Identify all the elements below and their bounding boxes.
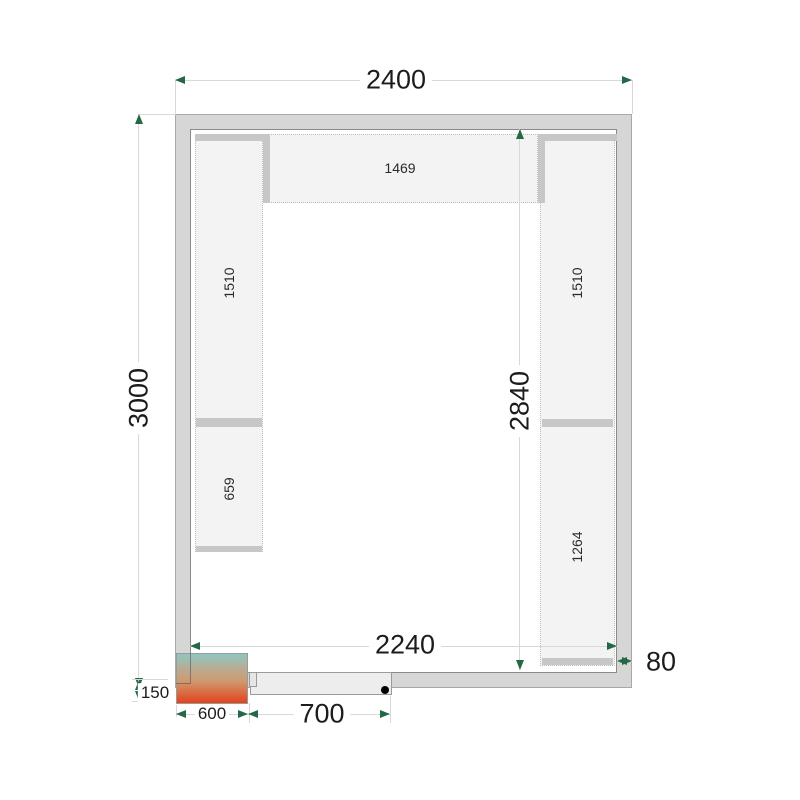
dim-3000-arrow-top xyxy=(135,114,143,124)
dim-700-arrow-right xyxy=(380,710,390,718)
dim-80-arrow-right xyxy=(622,657,632,665)
shelf-label-left-upper: 1510 xyxy=(222,267,236,298)
dim-3000-ext-top xyxy=(138,114,176,115)
dim-700-ext-right xyxy=(390,696,391,723)
shelf-edge-left-top xyxy=(195,134,270,141)
door-hinge-block xyxy=(249,672,257,687)
shelf-divider-right xyxy=(542,419,613,427)
dim-600-label: 600 xyxy=(195,704,229,724)
dim-2400-label: 2400 xyxy=(360,64,432,95)
floor-plan-canvas: 1469 1510 659 1510 1264 2400 3000 2840 2… xyxy=(0,0,800,800)
dim-600-arrow-left xyxy=(176,710,186,718)
dim-2840-arrow-bottom xyxy=(516,660,524,670)
dim-2400-ext-right xyxy=(632,80,633,114)
cooling-unit-wall-line-vertical xyxy=(190,653,191,683)
shelf-label-left-lower: 659 xyxy=(222,477,236,500)
shelf-divider-left xyxy=(196,418,262,427)
shelf-edge-left-bottom-cap xyxy=(196,546,262,552)
dim-2400-ext-left xyxy=(175,80,176,114)
dim-2240-arrow-right xyxy=(607,642,617,650)
dim-2840-label: 2840 xyxy=(504,365,535,437)
cooling-unit xyxy=(176,653,248,704)
shelf-edge-right-bottom-cap xyxy=(542,658,613,665)
dim-2840-arrow-top xyxy=(516,129,524,139)
dim-700-arrow-left xyxy=(248,710,258,718)
dim-2400-arrow-left xyxy=(175,76,185,84)
shelf-label-top: 1469 xyxy=(384,161,415,175)
dim-600-arrow-right xyxy=(238,710,248,718)
dim-700-label: 700 xyxy=(293,698,350,729)
door-handle-dot xyxy=(381,686,389,694)
shelf-edge-topshelf-left-cap xyxy=(263,134,270,203)
dim-150-label: 150 xyxy=(138,683,172,703)
dim-2240-label: 2240 xyxy=(369,629,441,660)
shelf-edge-right-top xyxy=(540,134,617,141)
shelf-right-column xyxy=(540,134,615,666)
dim-2400-arrow-right xyxy=(622,76,632,84)
door-leaf xyxy=(250,672,392,695)
dim-2240-arrow-left xyxy=(190,642,200,650)
shelf-label-right-lower: 1264 xyxy=(570,531,584,562)
dim-3000-label: 3000 xyxy=(123,362,154,434)
shelf-edge-topshelf-right-cap xyxy=(538,134,545,203)
cooling-unit-wall-line-horizontal xyxy=(176,683,191,684)
dim-80-label: 80 xyxy=(640,646,682,677)
shelf-label-right-upper: 1510 xyxy=(570,267,584,298)
